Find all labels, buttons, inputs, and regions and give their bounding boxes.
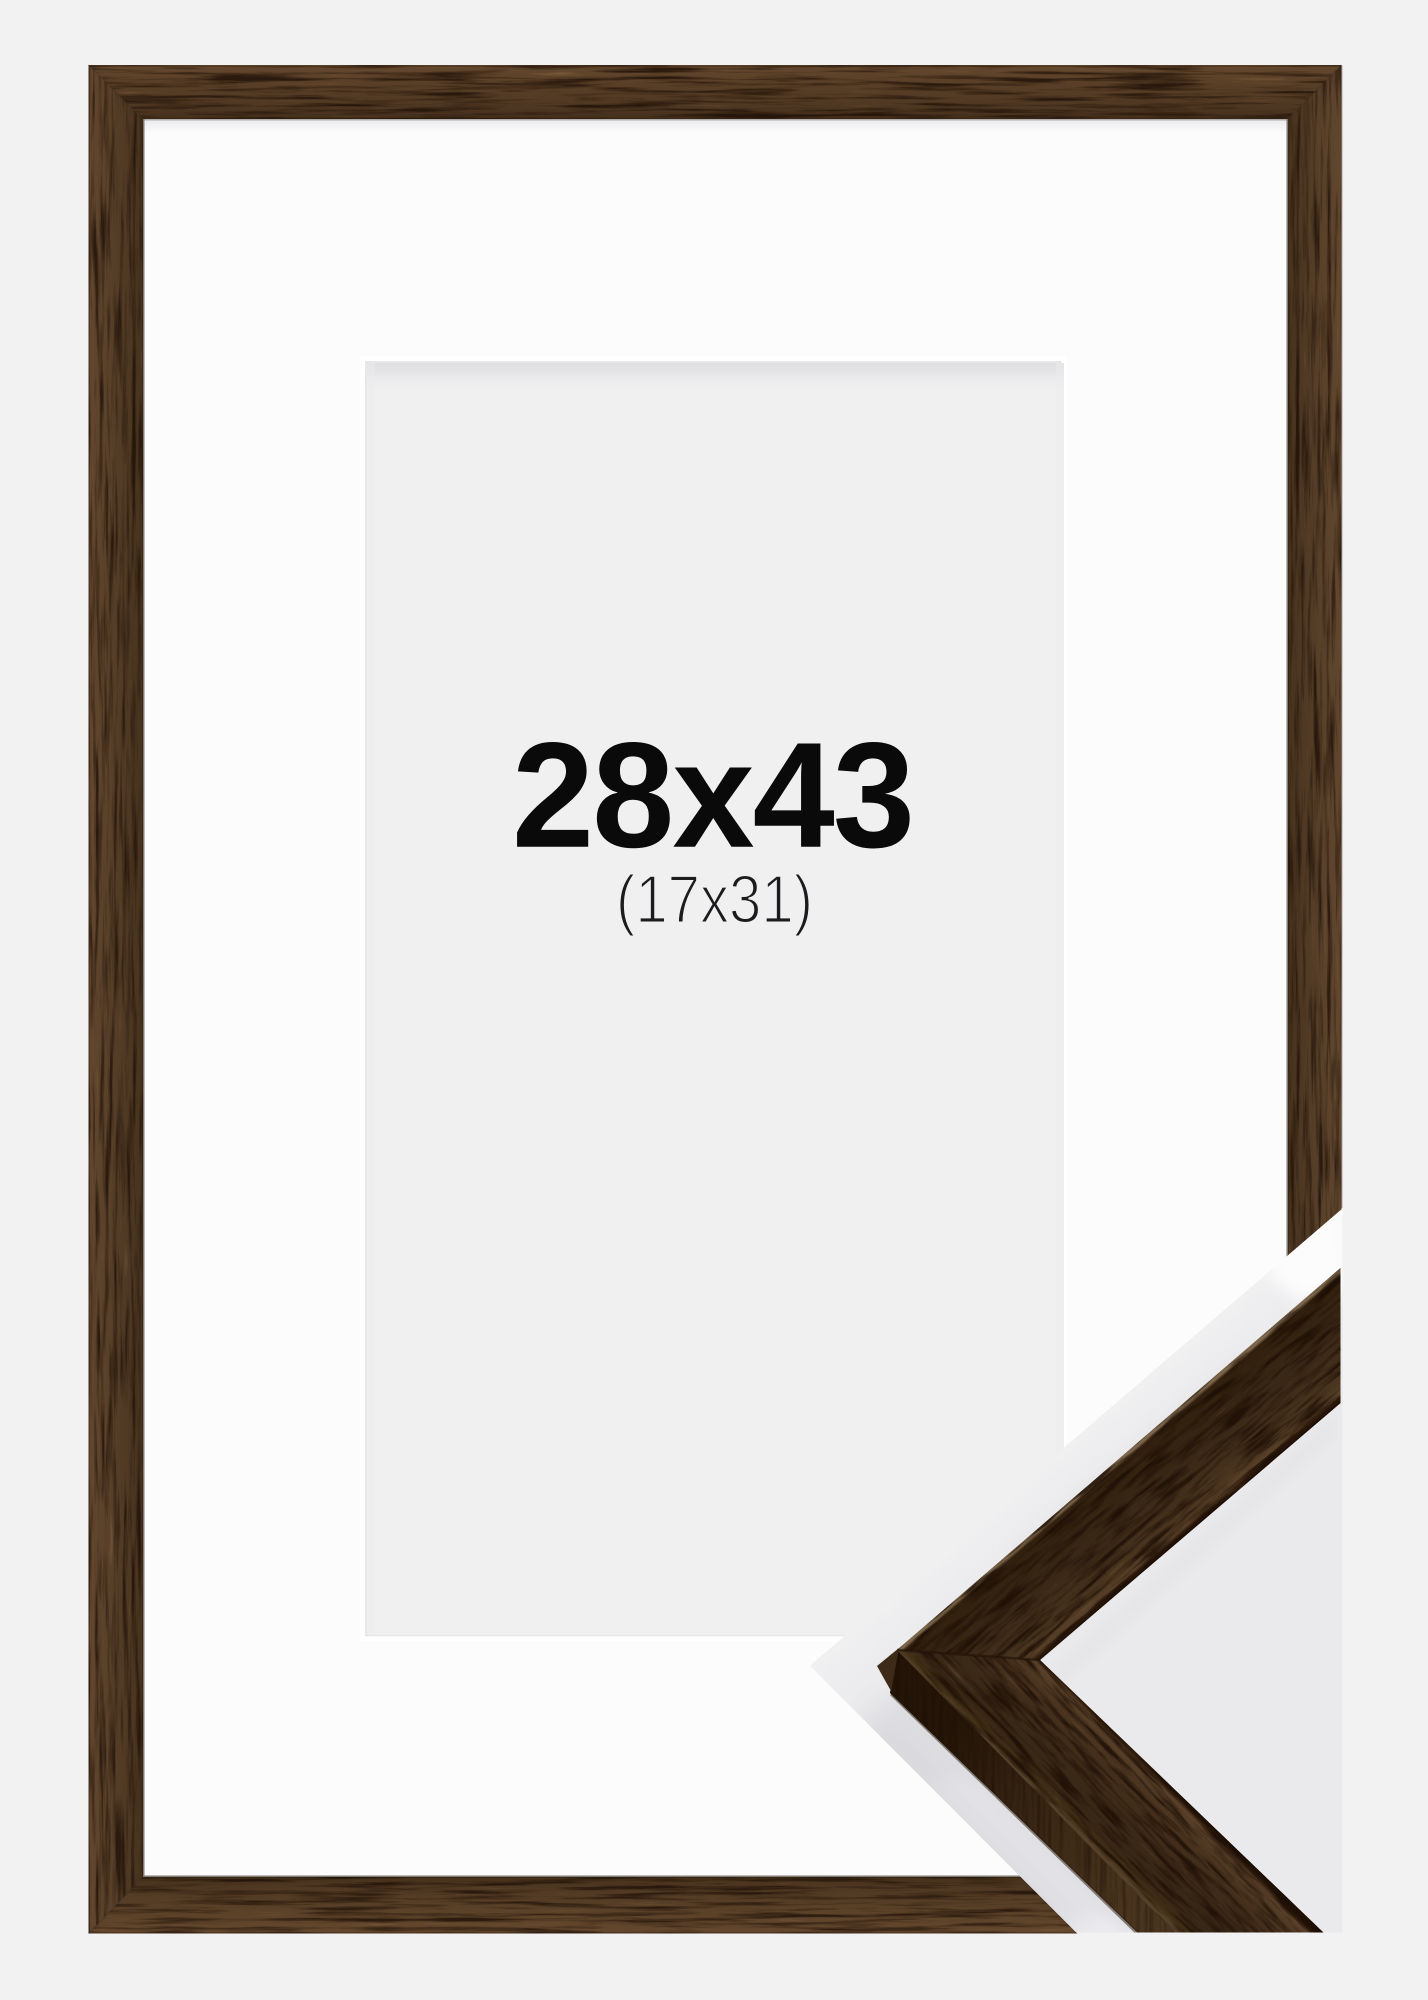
svg-text:28x43: 28x43 [512,711,913,879]
svg-text:(17x31): (17x31) [616,862,813,937]
